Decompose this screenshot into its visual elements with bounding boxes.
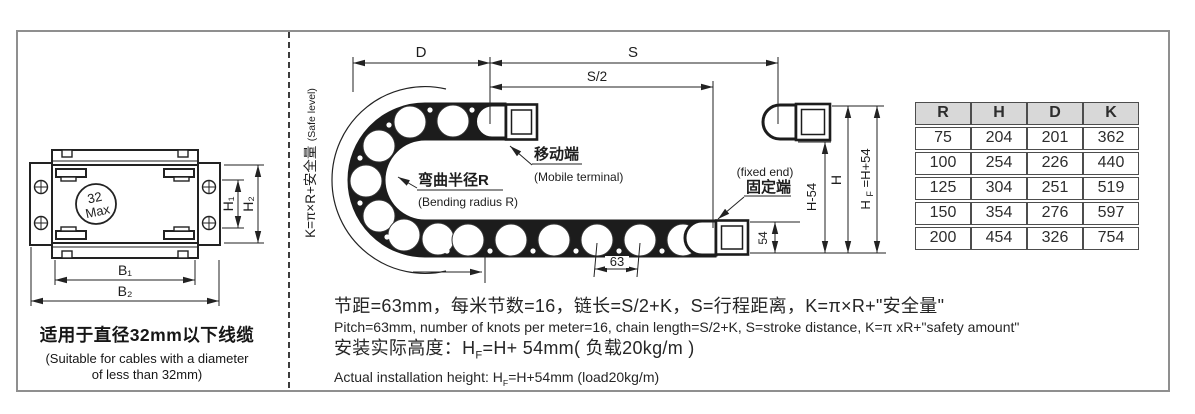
cell-d: 251 bbox=[1027, 177, 1083, 200]
notes-block: 节距=63mm，每米节数=16，链长=S/2+K，S=行程距离，K=π×R+"安… bbox=[334, 295, 1019, 392]
top-crossbar bbox=[52, 150, 198, 165]
cell-h: 204 bbox=[971, 127, 1027, 150]
table-row: 150 354 276 597 bbox=[915, 202, 1139, 225]
caption-en: (Suitable for cables with a diameter of … bbox=[22, 351, 272, 383]
note-height-zh-b: =H+ 54mm( 负载20kg/m ) bbox=[483, 338, 695, 358]
fixed-end-label-zh: 固定端 bbox=[746, 178, 791, 196]
side-plate-left bbox=[30, 163, 52, 245]
note-height-en: Actual installation height: HF=H+54mm (l… bbox=[334, 368, 1019, 393]
table-row: 125 304 251 519 bbox=[915, 177, 1139, 200]
dim-label-hf: H F =H+54 bbox=[858, 148, 876, 209]
note-height-zh-sub: F bbox=[475, 350, 482, 362]
spec-table-header-row: R H D K bbox=[915, 102, 1139, 125]
cell-r: 200 bbox=[915, 227, 971, 250]
caption-zh: 适用于直径32mm以下线缆 bbox=[22, 322, 272, 347]
fixed-end-bracket bbox=[685, 221, 748, 256]
cell-k: 440 bbox=[1083, 152, 1139, 175]
cell-k: 597 bbox=[1083, 202, 1139, 225]
col-header-h: H bbox=[971, 102, 1027, 125]
col-header-k: K bbox=[1083, 102, 1139, 125]
safe-level-label: K=π×R+安全量 (Safe level) bbox=[302, 88, 319, 238]
caption-en-line1: (Suitable for cables with a diameter bbox=[45, 351, 248, 366]
dim-label-b2: B₂ bbox=[118, 283, 133, 299]
bend-radius-label-zh: 弯曲半径R bbox=[418, 171, 489, 189]
mobile-terminal-raised bbox=[763, 104, 830, 140]
mobile-terminal-bracket bbox=[476, 105, 538, 140]
dim-label-b1: B₁ bbox=[118, 262, 132, 278]
cell-h: 304 bbox=[971, 177, 1027, 200]
cell-r: 100 bbox=[915, 152, 971, 175]
cell-h: 354 bbox=[971, 202, 1027, 225]
cell-r: 75 bbox=[915, 127, 971, 150]
col-header-d: D bbox=[1027, 102, 1083, 125]
cell-h: 454 bbox=[971, 227, 1027, 250]
dim-label-h2: H₂ bbox=[240, 196, 256, 212]
cell-d: 276 bbox=[1027, 202, 1083, 225]
col-header-r: R bbox=[915, 102, 971, 125]
note-pitch-zh: 节距=63mm，每米节数=16，链长=S/2+K，S=行程距离，K=π×R+"安… bbox=[334, 295, 1019, 318]
cell-r: 125 bbox=[915, 177, 971, 200]
hf-rest: =H+54 bbox=[858, 148, 873, 187]
spec-table: R H D K 75 204 201 362 100 254 226 440 1… bbox=[915, 100, 1139, 252]
dim-label-h: H bbox=[828, 175, 844, 185]
mobile-terminal-label-en: (Mobile terminal) bbox=[534, 170, 623, 184]
cross-section-view: 32 Max bbox=[30, 150, 220, 258]
drag-chain-spec-sheet: 32 Max H₁ H₂ B₁ B₂ bbox=[0, 0, 1195, 414]
note-height-en-a: Actual installation height: H bbox=[334, 369, 503, 385]
cell-d: 226 bbox=[1027, 152, 1083, 175]
dim-label-h-minus-54: H-54 bbox=[804, 183, 819, 211]
safe-level-en: (Safe level) bbox=[306, 88, 318, 141]
note-height-en-b: =H+54mm (load20kg/m) bbox=[508, 369, 659, 385]
dim-label-d: D bbox=[416, 44, 427, 61]
mobile-terminal-label-zh: 移动端 bbox=[534, 145, 579, 163]
left-caption: 适用于直径32mm以下线缆 (Suitable for cables with … bbox=[22, 322, 272, 383]
safe-level-zh: K=π×R+安全量 bbox=[302, 146, 318, 238]
dim-label-63: 63 bbox=[610, 254, 624, 269]
table-row: 100 254 226 440 bbox=[915, 152, 1139, 175]
dim-label-s-half: S/2 bbox=[587, 69, 607, 84]
note-height-zh: 安装实际高度：HF=H+ 54mm( 负载20kg/m ) bbox=[334, 337, 1019, 368]
table-row: 75 204 201 362 bbox=[915, 127, 1139, 150]
side-plate-right bbox=[198, 163, 220, 245]
cell-d: 201 bbox=[1027, 127, 1083, 150]
dim-label-54: 54 bbox=[756, 231, 770, 245]
bend-radius-label-en: (Bending radius R) bbox=[418, 195, 518, 209]
table-row: 200 454 326 754 bbox=[915, 227, 1139, 250]
hf-sub: F bbox=[865, 191, 875, 197]
note-pitch-en: Pitch=63mm, number of knots per meter=16… bbox=[334, 318, 1019, 337]
dim-label-h1: H₁ bbox=[220, 196, 236, 211]
hf-base: H bbox=[858, 200, 873, 209]
fixed-end-label-en: (fixed end) bbox=[737, 165, 794, 179]
dim-label-s: S bbox=[628, 44, 638, 61]
cell-k: 754 bbox=[1083, 227, 1139, 250]
cell-h: 254 bbox=[971, 152, 1027, 175]
bottom-crossbar bbox=[52, 243, 198, 258]
cell-k: 362 bbox=[1083, 127, 1139, 150]
cell-k: 519 bbox=[1083, 177, 1139, 200]
caption-en-line2: of less than 32mm) bbox=[92, 367, 203, 382]
note-height-zh-a: 安装实际高度：H bbox=[334, 338, 475, 358]
cell-r: 150 bbox=[915, 202, 971, 225]
cell-d: 326 bbox=[1027, 227, 1083, 250]
